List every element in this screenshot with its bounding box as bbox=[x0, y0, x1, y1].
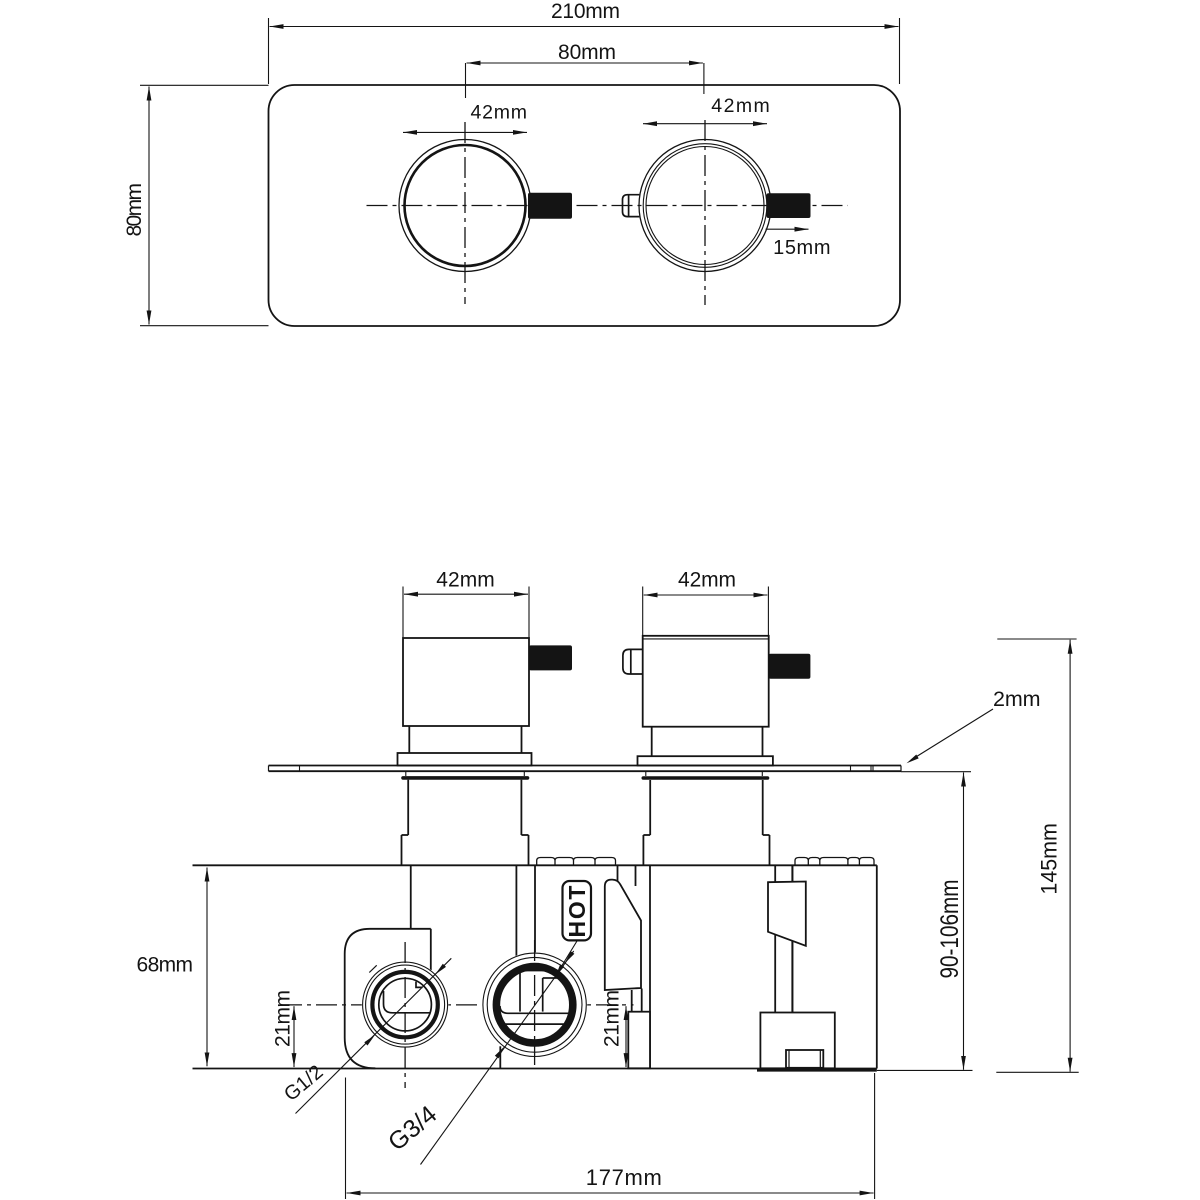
svg-text:80mm: 80mm bbox=[558, 41, 616, 64]
svg-text:15mm: 15mm bbox=[773, 237, 830, 259]
svg-text:42mm: 42mm bbox=[436, 569, 494, 592]
svg-text:42mm: 42mm bbox=[678, 569, 736, 592]
svg-text:HOT: HOT bbox=[564, 886, 590, 938]
svg-text:21mm: 21mm bbox=[601, 990, 624, 1047]
svg-text:68mm: 68mm bbox=[137, 954, 194, 977]
svg-text:90-106mm: 90-106mm bbox=[936, 880, 964, 979]
svg-text:21mm: 21mm bbox=[272, 990, 295, 1047]
svg-text:42mm: 42mm bbox=[471, 102, 528, 124]
svg-text:145mm: 145mm bbox=[1037, 823, 1062, 895]
svg-text:80mm: 80mm bbox=[123, 183, 146, 237]
svg-text:G3/4: G3/4 bbox=[383, 1100, 443, 1156]
svg-text:210mm: 210mm bbox=[551, 0, 620, 23]
svg-text:177mm: 177mm bbox=[586, 1165, 662, 1190]
svg-text:42mm: 42mm bbox=[711, 95, 770, 117]
svg-text:2mm: 2mm bbox=[993, 687, 1041, 711]
